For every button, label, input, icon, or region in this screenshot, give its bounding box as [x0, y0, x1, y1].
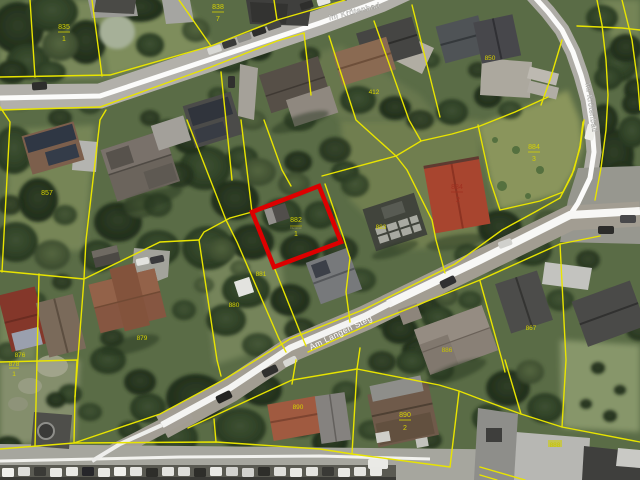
svg-text:882: 882	[290, 217, 302, 224]
svg-text:857: 857	[41, 190, 53, 197]
svg-text:884: 884	[528, 144, 540, 151]
svg-text:884: 884	[451, 184, 463, 191]
svg-text:2: 2	[403, 425, 407, 432]
svg-text:3: 3	[532, 156, 536, 163]
svg-text:7: 7	[216, 16, 220, 23]
svg-text:Flurstück: Flurstück	[290, 226, 302, 230]
svg-text:850: 850	[485, 55, 496, 62]
svg-text:876: 876	[15, 352, 26, 359]
svg-text:838: 838	[212, 4, 224, 11]
svg-text:1: 1	[12, 371, 16, 378]
svg-text:890: 890	[399, 412, 411, 419]
svg-text:880: 880	[229, 302, 240, 309]
svg-text:881: 881	[256, 271, 267, 278]
svg-text:1: 1	[294, 231, 298, 238]
svg-text:2: 2	[456, 197, 460, 204]
svg-text:412: 412	[369, 89, 380, 96]
svg-text:835: 835	[58, 24, 70, 31]
svg-text:883: 883	[376, 224, 387, 231]
svg-text:1: 1	[62, 36, 66, 43]
svg-text:878: 878	[9, 361, 20, 368]
svg-text:890: 890	[293, 404, 304, 411]
svg-text:867: 867	[526, 325, 537, 332]
svg-text:879: 879	[137, 335, 148, 342]
svg-text:886: 886	[442, 347, 453, 354]
svg-text:888: 888	[550, 442, 561, 449]
